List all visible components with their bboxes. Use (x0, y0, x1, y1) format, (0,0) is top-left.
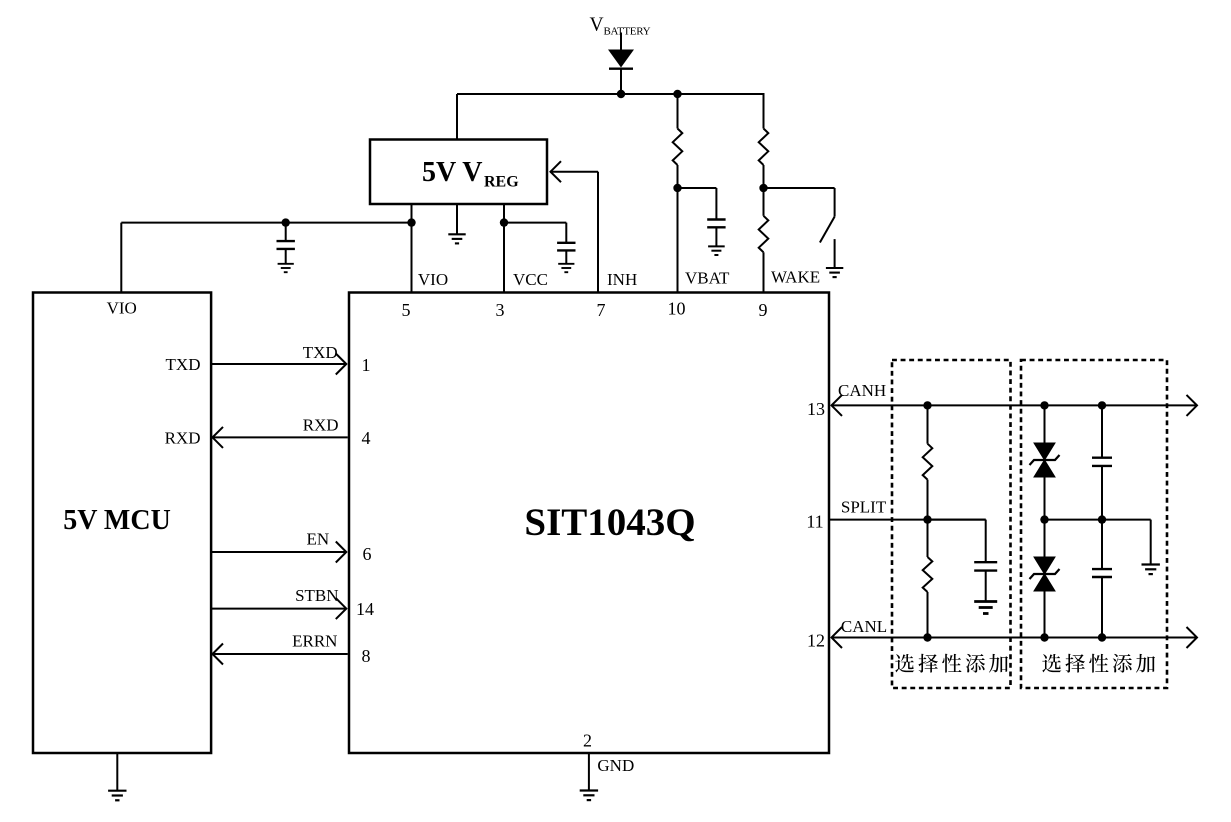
svg-text:6: 6 (363, 544, 372, 564)
svg-text:SPLIT: SPLIT (841, 498, 887, 517)
svg-text:2: 2 (583, 731, 592, 751)
svg-text:VIO: VIO (418, 270, 448, 289)
svg-text:ERRN: ERRN (292, 632, 337, 651)
svg-text:RXD: RXD (303, 416, 339, 435)
svg-text:5V V: 5V V (422, 157, 482, 188)
svg-text:REG: REG (484, 174, 519, 191)
svg-text:CANH: CANH (838, 381, 886, 400)
svg-text:13: 13 (807, 399, 825, 419)
svg-text:VBAT: VBAT (685, 269, 730, 288)
svg-text:10: 10 (668, 299, 686, 319)
svg-text:EN: EN (307, 530, 330, 549)
svg-text:VCC: VCC (513, 270, 548, 289)
svg-text:WAKE: WAKE (771, 268, 820, 287)
svg-text:5: 5 (402, 300, 411, 320)
svg-text:CANL: CANL (841, 617, 887, 636)
svg-text:7: 7 (597, 300, 606, 320)
svg-text:1: 1 (362, 355, 371, 375)
svg-text:11: 11 (806, 512, 823, 532)
svg-text:RXD: RXD (165, 428, 201, 447)
svg-text:14: 14 (356, 599, 374, 619)
svg-text:SIT1043Q: SIT1043Q (524, 501, 695, 544)
svg-text:STBN: STBN (295, 586, 338, 605)
svg-text:TXD: TXD (166, 355, 201, 374)
svg-text:V: V (590, 15, 604, 36)
svg-text:5V MCU: 5V MCU (63, 505, 171, 536)
svg-text:VIO: VIO (107, 299, 137, 318)
svg-text:GND: GND (597, 756, 634, 775)
svg-text:12: 12 (807, 631, 825, 651)
svg-text:TXD: TXD (303, 343, 338, 362)
svg-text:8: 8 (362, 646, 371, 666)
svg-text:INH: INH (607, 270, 637, 289)
svg-text:BATTERY: BATTERY (604, 26, 651, 38)
svg-text:9: 9 (759, 300, 768, 320)
svg-text:3: 3 (496, 300, 505, 320)
svg-text:4: 4 (362, 428, 371, 448)
